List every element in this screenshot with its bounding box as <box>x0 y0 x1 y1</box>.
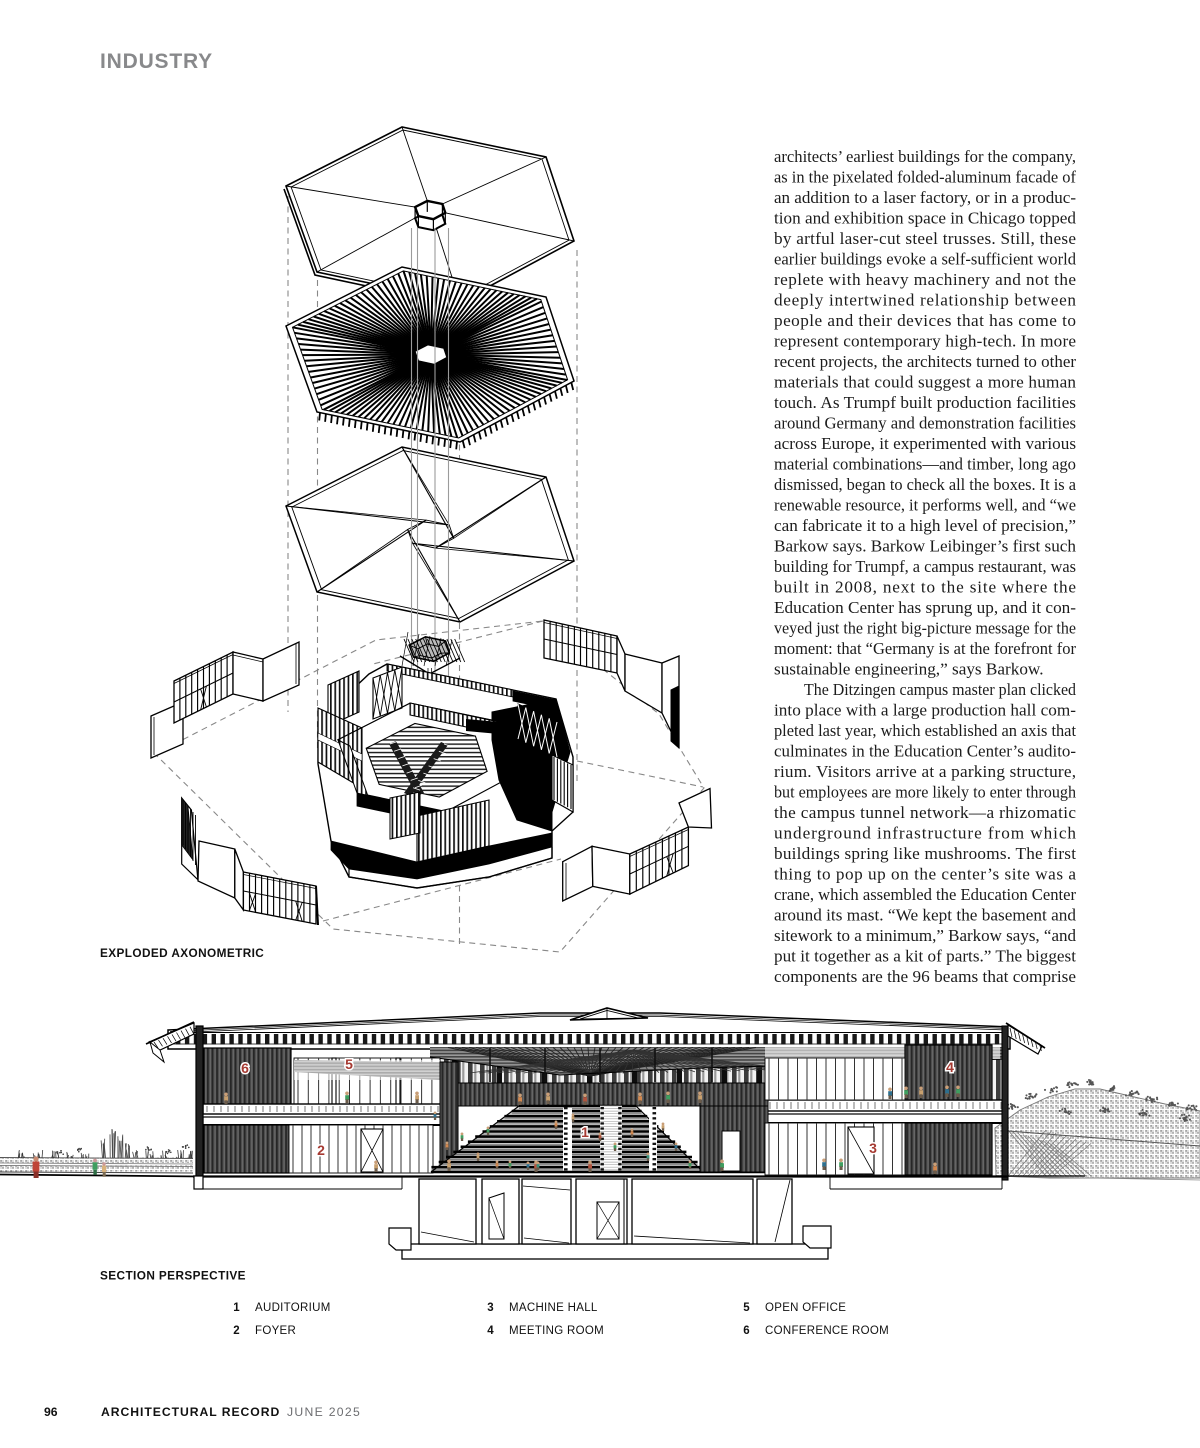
svg-text:recent projects, the architect: recent projects, the architects turned t… <box>774 352 1076 371</box>
svg-text:SECTION PERSPECTIVE: SECTION PERSPECTIVE <box>100 1269 246 1283</box>
svg-text:material combinations—and timb: material combinations—and timber, long a… <box>774 455 1076 474</box>
svg-text:across Europe, it experimented: across Europe, it experimented with vari… <box>774 434 1076 453</box>
svg-text:6: 6 <box>241 1060 249 1076</box>
svg-text:2: 2 <box>233 1325 240 1337</box>
svg-text:culminates in the Education Ce: culminates in the Education Center’s aud… <box>774 742 1076 761</box>
svg-text:ARCHITECTURAL RECORD: ARCHITECTURAL RECORD <box>101 1405 280 1419</box>
svg-text:The Ditzingen campus master pl: The Ditzingen campus master plan clicked <box>804 680 1076 699</box>
svg-text:touch. As Trumpf built product: touch. As Trumpf built production facili… <box>774 393 1076 412</box>
svg-text:MACHINE HALL: MACHINE HALL <box>509 1302 598 1314</box>
svg-text:but employees are more likely: but employees are more likely to enter t… <box>774 783 1076 802</box>
svg-text:3: 3 <box>869 1140 877 1156</box>
svg-text:4: 4 <box>487 1325 494 1337</box>
svg-text:5: 5 <box>345 1056 353 1072</box>
svg-text:renewable resource, it perform: renewable resource, it performs well, an… <box>774 496 1076 515</box>
svg-text:around Germany and demonstrati: around Germany and demonstration facilit… <box>774 414 1076 433</box>
svg-text:underground infrastructure fro: underground infrastructure from which <box>774 824 1076 843</box>
svg-text:FOYER: FOYER <box>255 1325 296 1337</box>
svg-text:earlier buildings evoke a self: earlier buildings evoke a self-sufficien… <box>774 250 1076 269</box>
svg-text:dismissed, began to check all: dismissed, began to check all the boxes.… <box>774 475 1076 494</box>
svg-text:materials that could suggest a: materials that could suggest a more huma… <box>774 373 1076 392</box>
svg-text:sustainable engineering,” says: sustainable engineering,” says Barkow. <box>774 660 1044 679</box>
svg-text:1: 1 <box>233 1302 240 1314</box>
svg-text:into place with a large produc: into place with a large production hall … <box>774 701 1076 720</box>
svg-text:veyed just the right big-pictu: veyed just the right big-picture message… <box>774 619 1076 638</box>
svg-text:96: 96 <box>44 1405 58 1419</box>
svg-text:rium. Visitors arrive at a par: rium. Visitors arrive at a parking struc… <box>774 762 1076 781</box>
svg-text:thing to pop up on the center’: thing to pop up on the center’s site was… <box>774 865 1076 884</box>
svg-text:can fabricate it to a high lev: can fabricate it to a high level of prec… <box>774 516 1076 535</box>
svg-text:6: 6 <box>743 1325 750 1337</box>
svg-text:architects’ earliest buildings: architects’ earliest buildings for the c… <box>774 147 1076 166</box>
svg-text:MEETING ROOM: MEETING ROOM <box>509 1325 604 1337</box>
svg-text:3: 3 <box>487 1302 494 1314</box>
svg-text:OPEN OFFICE: OPEN OFFICE <box>765 1302 846 1314</box>
svg-text:built in 2008, next to the sit: built in 2008, next to the site where th… <box>774 578 1076 597</box>
svg-text:CONFERENCE ROOM: CONFERENCE ROOM <box>765 1325 889 1337</box>
svg-text:2: 2 <box>317 1142 325 1158</box>
svg-text:AUDITORIUM: AUDITORIUM <box>255 1302 331 1314</box>
svg-text:the campus tunnel network—a rh: the campus tunnel network—a rhizomatic <box>774 803 1076 822</box>
svg-text:sitework to a minimum,” Barkow: sitework to a minimum,” Barkow says, “an… <box>774 926 1076 945</box>
svg-text:buildings spring like mushroom: buildings spring like mushrooms. The fir… <box>774 844 1076 863</box>
svg-text:tion and exhibition space in C: tion and exhibition space in Chicago top… <box>774 209 1076 228</box>
svg-text:people and their devices that: people and their devices that has come t… <box>774 311 1076 330</box>
svg-text:moment: that “Germany is at th: moment: that “Germany is at the forefron… <box>774 639 1076 658</box>
svg-text:pleted last year, which establ: pleted last year, which established an a… <box>774 721 1076 740</box>
svg-text:5: 5 <box>743 1302 750 1314</box>
svg-text:4: 4 <box>946 1059 954 1075</box>
svg-text:around its mast. “We kept the: around its mast. “We kept the basement a… <box>774 906 1076 925</box>
svg-text:Education Center has sprung up: Education Center has sprung up, and it c… <box>774 598 1076 617</box>
svg-text:crane, which assembled the Edu: crane, which assembled the Education Cen… <box>774 885 1076 904</box>
svg-text:represent contemporary high-te: represent contemporary high-tech. In mor… <box>774 332 1076 351</box>
svg-text:replete with heavy machinery a: replete with heavy machinery and not the <box>774 270 1076 289</box>
svg-text:building for Trumpf, a campus: building for Trumpf, a campus restaurant… <box>774 557 1076 576</box>
svg-text:as in the pixelated folded-alu: as in the pixelated folded-aluminum faca… <box>774 168 1076 187</box>
svg-text:deeply intertwined relationshi: deeply intertwined relationship between <box>774 291 1076 310</box>
svg-text:EXPLODED AXONOMETRIC: EXPLODED AXONOMETRIC <box>100 946 264 960</box>
svg-text:by artful laser-cut steel trus: by artful laser-cut steel trusses. Still… <box>774 229 1076 248</box>
svg-text:put it together as a kit of pa: put it together as a kit of parts.” The … <box>774 947 1076 966</box>
svg-text:INDUSTRY: INDUSTRY <box>100 50 213 73</box>
svg-text:JUNE 2025: JUNE 2025 <box>287 1405 361 1419</box>
svg-text:1: 1 <box>581 1124 589 1140</box>
svg-text:an addition to a laser factory: an addition to a laser factory, or in a … <box>774 188 1076 207</box>
svg-text:Barkow says. Barkow Leibinger’: Barkow says. Barkow Leibinger’s first su… <box>774 537 1076 556</box>
svg-text:components are the 96 beams th: components are the 96 beams that compris… <box>774 967 1076 986</box>
